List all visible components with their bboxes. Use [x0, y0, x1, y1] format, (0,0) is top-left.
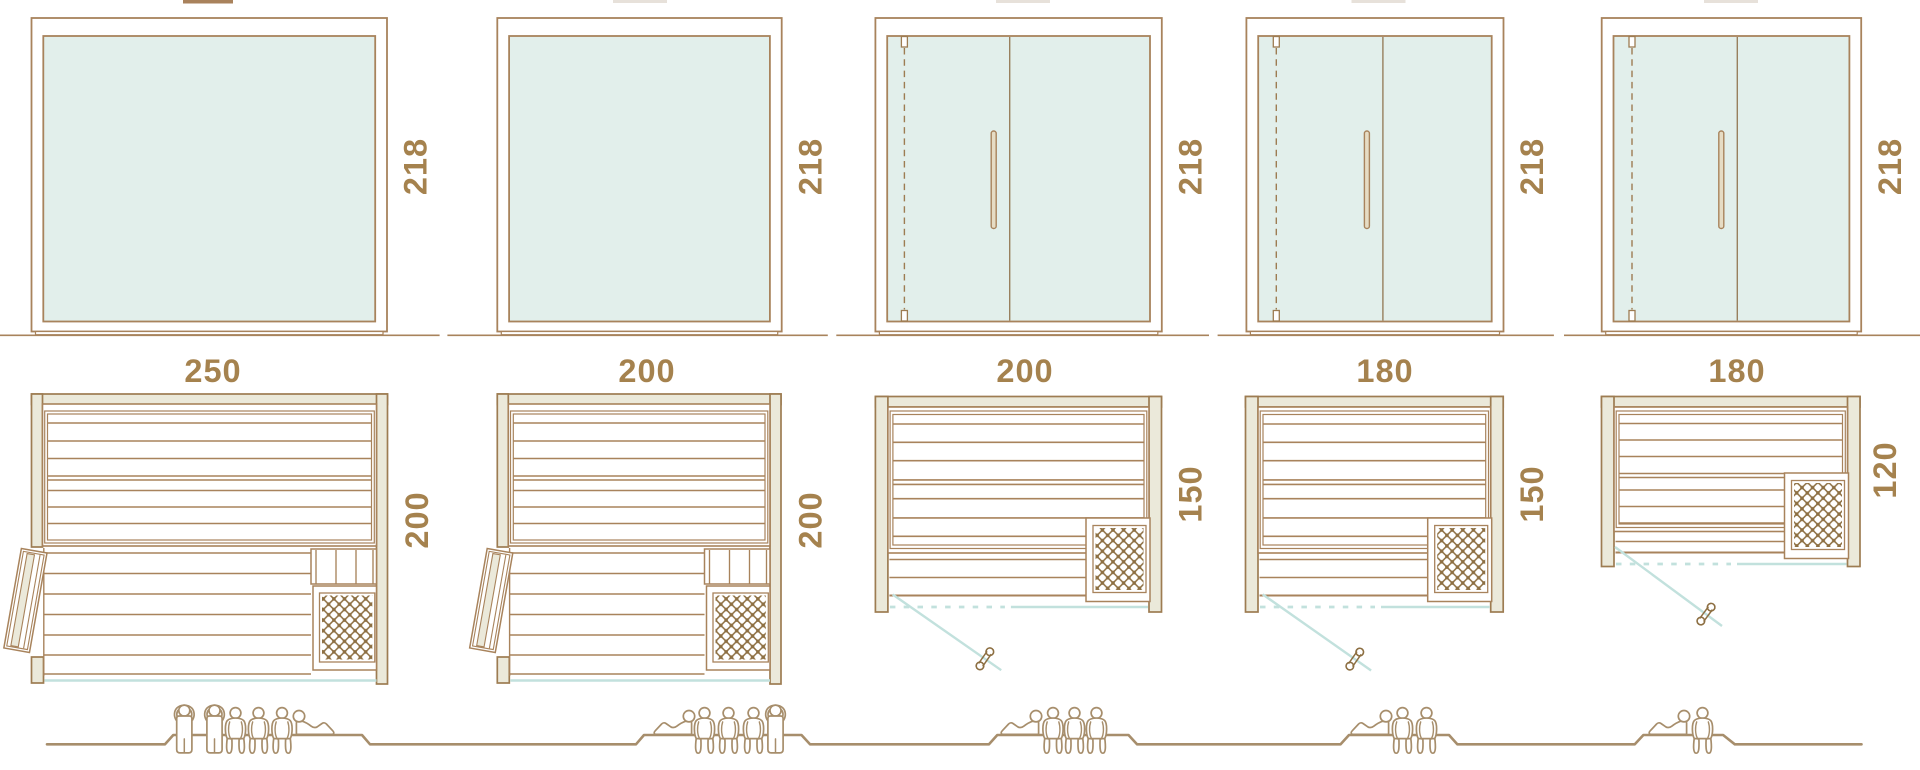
svg-text:218: 218 — [398, 138, 434, 195]
svg-text:250: 250 — [184, 353, 241, 389]
svg-text:180: 180 — [1356, 353, 1413, 389]
svg-text:218: 218 — [1872, 138, 1908, 195]
svg-text:150: 150 — [1514, 465, 1550, 522]
svg-text:120: 120 — [1867, 441, 1903, 498]
svg-text:200: 200 — [996, 353, 1053, 389]
svg-text:218: 218 — [792, 138, 828, 195]
svg-text:180: 180 — [1708, 353, 1765, 389]
svg-text:200: 200 — [399, 491, 435, 548]
svg-text:218: 218 — [1172, 138, 1208, 195]
svg-text:218: 218 — [1514, 138, 1550, 195]
svg-text:150: 150 — [1173, 465, 1209, 522]
svg-text:200: 200 — [618, 353, 675, 389]
svg-text:200: 200 — [793, 491, 829, 548]
